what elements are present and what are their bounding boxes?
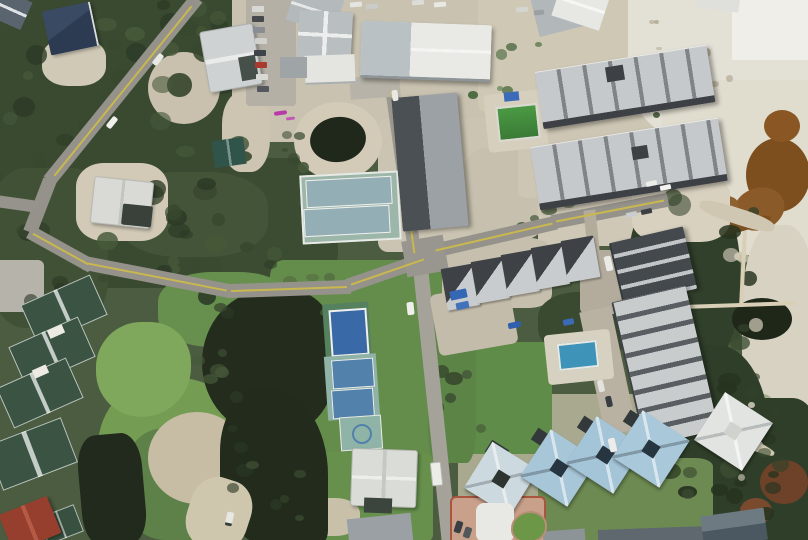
trees-dune-lower-blob bbox=[770, 409, 781, 416]
trees-topleft-blob bbox=[205, 234, 227, 253]
court-blue-surface bbox=[328, 308, 369, 358]
trees-pond-shore-blob bbox=[203, 374, 219, 384]
trees-mid-west-blob bbox=[168, 223, 190, 239]
house-red-roof bbox=[0, 496, 62, 540]
parked-car-3 bbox=[253, 27, 265, 33]
trees-bottom-center-blob bbox=[246, 461, 259, 469]
trees-dune-upper-blob bbox=[719, 225, 741, 239]
palms-commercial-blob bbox=[496, 49, 508, 60]
beach-bright-corner bbox=[732, 0, 808, 60]
parked-car-4 bbox=[255, 38, 267, 44]
trees-road-median-blob bbox=[240, 242, 254, 252]
trees-topleft-blob bbox=[23, 71, 34, 80]
truck-south-road bbox=[430, 461, 443, 486]
trees-topleft-blob bbox=[26, 45, 47, 64]
parked-car-8 bbox=[257, 86, 269, 92]
aerial-photo bbox=[0, 0, 808, 540]
trees-pond-shore-blob bbox=[191, 355, 205, 366]
car-south-road bbox=[406, 302, 414, 316]
trees-topleft-blob bbox=[95, 18, 117, 31]
condo-mid-north-south bbox=[391, 92, 468, 231]
palms-commercial-blob bbox=[468, 91, 479, 99]
beach-debris-blob bbox=[726, 75, 734, 82]
trees-topleft-blob bbox=[13, 97, 35, 117]
dune-sand-spots-blob bbox=[749, 318, 763, 331]
pickleball-court-1 bbox=[331, 358, 375, 390]
trees-dune-lower-blob bbox=[745, 388, 760, 397]
trees-pond-top-bank-blob bbox=[282, 148, 289, 152]
top-edge-car-5 bbox=[516, 6, 528, 12]
green-algae-pool bbox=[495, 103, 540, 142]
townhouse-sawtooth-unit-5 bbox=[561, 235, 601, 282]
trees-bottom-center-blob bbox=[234, 442, 249, 453]
pond-channel-bottom-left bbox=[75, 431, 149, 540]
commercial-white-small bbox=[305, 54, 356, 85]
trees-topleft-upper-blob bbox=[108, 39, 121, 51]
trees-topleft-blob bbox=[168, 204, 180, 215]
trees-bottom-right-corner-blob bbox=[765, 482, 781, 494]
blue-pool bbox=[557, 340, 600, 371]
verge-shrubs-blob bbox=[462, 370, 472, 380]
commercial-cross-gable bbox=[297, 10, 353, 61]
basketball-center-circle bbox=[352, 424, 372, 444]
top-edge-car-6 bbox=[534, 10, 544, 16]
beach-debris-blob bbox=[654, 20, 659, 24]
condo-b-roof-notch bbox=[631, 145, 649, 160]
tennis-courts-north-court2 bbox=[303, 205, 390, 237]
trees-road-median-blob bbox=[190, 260, 201, 271]
trees-bottom-center-blob bbox=[270, 499, 282, 510]
verge-shrubs-blob bbox=[445, 372, 463, 385]
trees-dune-upper-blob bbox=[738, 324, 750, 332]
trees-topleft-blob bbox=[3, 112, 17, 125]
trees-pond-shore-blob bbox=[230, 391, 243, 403]
trees-pond-top-bank-blob bbox=[282, 131, 292, 139]
trees-dune-lower-blob bbox=[682, 489, 693, 499]
trees-bottom-center-blob bbox=[294, 470, 306, 478]
trees-pond-shore-blob bbox=[227, 425, 238, 432]
parked-car-6 bbox=[255, 62, 267, 68]
blue-tarp-near-green-pool bbox=[504, 91, 520, 102]
kidney-garden-bottom bbox=[511, 511, 547, 540]
house-teal-roof bbox=[211, 137, 246, 168]
trees-dune-lower-blob bbox=[683, 467, 697, 478]
trees-left-edge-blob bbox=[98, 275, 108, 281]
parked-car-5 bbox=[254, 50, 266, 56]
pool-house-bottom bbox=[476, 503, 514, 540]
trees-topleft-blob bbox=[157, 0, 170, 9]
parked-car-1 bbox=[252, 6, 264, 12]
seaweed-patch-4 bbox=[764, 110, 800, 142]
trees-dune-lower-blob bbox=[718, 373, 741, 387]
trees-dune-lower-blob bbox=[711, 484, 729, 496]
trees-dune-lower-blob bbox=[726, 488, 743, 504]
trees-pond-top-bank-blob bbox=[294, 132, 305, 140]
blue-car-1 bbox=[508, 321, 522, 330]
trees-mid-west-blob bbox=[212, 213, 225, 225]
screen-enclosure-mid bbox=[121, 203, 153, 227]
trees-road-median-blob bbox=[267, 247, 281, 261]
parked-car-7 bbox=[256, 74, 268, 80]
trees-bottom-right-corner-blob bbox=[772, 456, 789, 472]
trees-dune-lower-blob bbox=[758, 448, 771, 457]
roof-partial-bottom-right-3 bbox=[543, 529, 586, 540]
tennis-pair-d bbox=[0, 417, 78, 490]
trees-pond-shore-blob bbox=[218, 349, 227, 356]
trees-topleft-upper-blob bbox=[125, 27, 145, 41]
commercial-gray-small bbox=[280, 57, 307, 78]
screen-cage-bottom bbox=[364, 498, 393, 514]
trees-bottom-center-blob bbox=[227, 483, 239, 493]
tennis-courts-north-court1 bbox=[305, 176, 392, 208]
parked-car-2 bbox=[252, 16, 264, 22]
commercial-white-long bbox=[360, 21, 492, 83]
dune-sand-spots-blob bbox=[723, 248, 739, 261]
top-edge-car-1 bbox=[350, 1, 362, 7]
trees-pond-top-bank-blob bbox=[298, 162, 309, 172]
condo-a-roof-notch bbox=[605, 65, 625, 83]
trees-topleft-blob bbox=[152, 76, 173, 93]
beach-debris-blob bbox=[656, 47, 661, 51]
trees-pond-top-bank-blob bbox=[288, 153, 300, 164]
top-edge-car-4 bbox=[434, 1, 446, 7]
top-edge-car-2 bbox=[366, 3, 378, 9]
